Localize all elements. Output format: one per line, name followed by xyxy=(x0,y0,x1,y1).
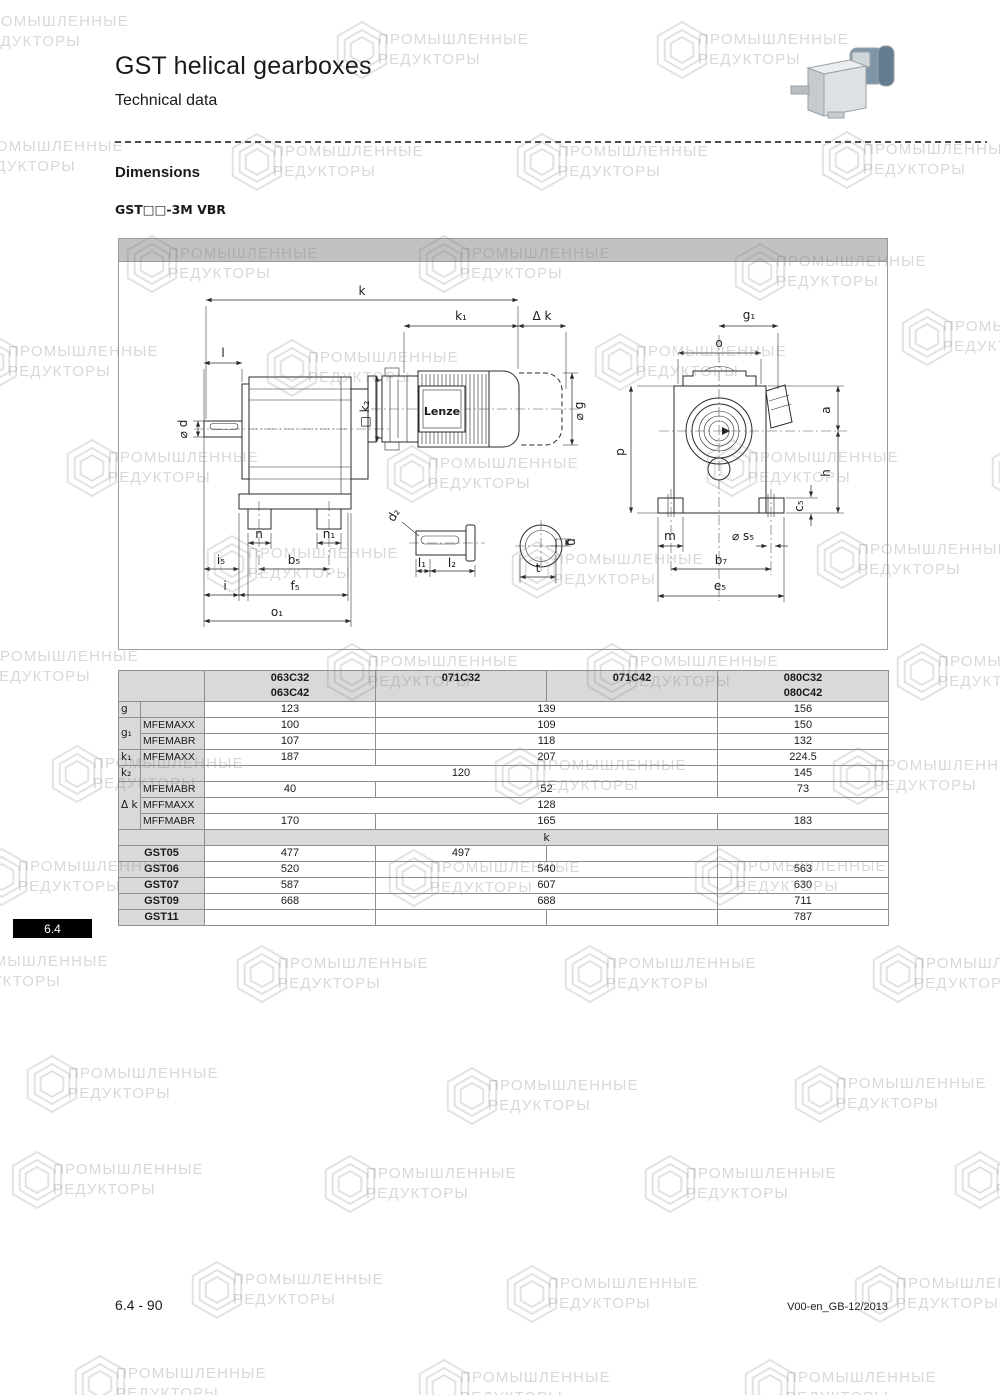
value-cell xyxy=(547,910,718,926)
watermark-text: ПРОМЫШЛЕННЫЕРЕДУКТОРЫ xyxy=(378,30,529,70)
watermark: ПРОМЫШЛЕННЫЕРЕДУКТОРЫ xyxy=(500,1262,699,1326)
column-header-cell: 080C32080C42 xyxy=(718,671,889,702)
watermark-text: ПРОМЫШЛЕННЫЕРЕДУКТОРЫ xyxy=(686,1164,837,1204)
dim-label-o₁: o₁ xyxy=(271,605,283,619)
watermark-logo-icon xyxy=(20,1052,84,1116)
watermark-logo-icon xyxy=(788,1062,852,1126)
watermark-logo-icon xyxy=(440,1064,504,1128)
dim-label-□ k₂: □ k₂ xyxy=(358,400,372,427)
dimension-table: 063C32063C42071C32071C42080C32080C42g123… xyxy=(118,670,889,926)
footer-doc-code: V00-en_GB-12/2013 xyxy=(118,1301,888,1313)
dim-label-⌀ d: ⌀ d xyxy=(176,420,190,439)
row-sublabel-cell: MFEMABR xyxy=(141,782,205,798)
dim-label-k: k xyxy=(359,284,366,298)
row-sublabel-cell: MFFMABR xyxy=(141,814,205,830)
value-cell: 630 xyxy=(718,878,889,894)
value-cell xyxy=(376,910,547,926)
value-cell: 224.5 xyxy=(718,750,889,766)
value-cell: 711 xyxy=(718,894,889,910)
page: ПРОМЫШЛЕННЫЕРЕДУКТОРЫПРОМЫШЛЕННЫЕРЕДУКТО… xyxy=(0,0,1000,1395)
drawing-header-bar xyxy=(119,239,887,262)
chapter-side-tab: 6.4 xyxy=(13,919,92,938)
watermark-text: ПРОМЫШЛЕННЫЕРЕДУКТОРЫ xyxy=(943,317,1000,357)
watermark: ПРОМЫШЛЕННЫЕРЕДУКТОРЫ xyxy=(412,1356,611,1395)
watermark: ПРОМЫШЛЕННЫЕРЕДУКТОРЫ xyxy=(948,1148,1000,1212)
value-cell: 107 xyxy=(205,734,376,750)
value-cell: 156 xyxy=(718,702,889,718)
value-cell: 563 xyxy=(718,862,889,878)
dim-label-u: u xyxy=(564,538,578,546)
watermark-text: ПРОМЫШЛЕННЫЕРЕДУКТОРЫ xyxy=(914,954,1000,994)
dim-label-t: t xyxy=(536,561,541,575)
watermark: ПРОМЫШЛЕННЫЕРЕДУКТОРЫ xyxy=(20,1052,219,1116)
value-cell xyxy=(547,846,718,862)
watermark-logo-icon xyxy=(985,440,1000,504)
gst-row-label-cell: GST09 xyxy=(119,894,205,910)
column-header-cell: 063C32063C42 xyxy=(205,671,376,702)
value-cell: 587 xyxy=(205,878,376,894)
watermark: ПРОМЫШЛЕННЫЕРЕДУКТОРЫ xyxy=(558,942,757,1006)
watermark-text: ПРОМЫШЛЕННЫЕРЕДУКТОРЫ xyxy=(0,137,124,177)
watermark: ПРОМЫШЛЕННЫЕРЕДУКТОРЫ xyxy=(5,1148,204,1212)
watermark-logo-icon xyxy=(5,1148,69,1212)
value-cell xyxy=(718,846,889,862)
watermark: ПРОМЫШЛЕННЫЕРЕДУКТОРЫ xyxy=(0,940,109,1004)
watermark-logo-icon xyxy=(500,1262,564,1326)
value-cell: 540 xyxy=(376,862,718,878)
watermark-text: ПРОМЫШЛЕННЫЕРЕДУКТОРЫ xyxy=(488,1076,639,1116)
dim-label-f₅: f₅ xyxy=(290,579,299,593)
watermark: ПРОМЫШЛЕННЫЕРЕДУКТОРЫ xyxy=(230,942,429,1006)
watermark-logo-icon xyxy=(650,18,714,82)
value-cell: 132 xyxy=(718,734,889,750)
value-cell: 207 xyxy=(376,750,718,766)
watermark: ПРОМЫШЛЕННЫЕРЕДУКТОРЫ xyxy=(440,1064,639,1128)
watermark: ПРОМЫШЛЕННЫЕРЕДУКТОРЫ xyxy=(225,130,424,194)
watermark-text: ПРОМЫШЛЕННЫЕРЕДУКТОРЫ xyxy=(996,1160,1000,1200)
dim-label-logo: Lenze xyxy=(424,405,460,418)
value-cell: 183 xyxy=(718,814,889,830)
watermark-text: ПРОМЫШЛЕННЫЕРЕДУКТОРЫ xyxy=(874,756,1000,796)
watermark-text: ПРОМЫШЛЕННЫЕРЕДУКТОРЫ xyxy=(460,1368,611,1395)
value-cell: 109 xyxy=(376,718,718,734)
value-cell: 187 xyxy=(205,750,376,766)
dim-label-i: i xyxy=(223,579,226,593)
gst-row-label-cell: GST11 xyxy=(119,910,205,926)
page-subtitle: Technical data xyxy=(115,92,217,110)
value-cell: 170 xyxy=(205,814,376,830)
watermark-logo-icon xyxy=(230,942,294,1006)
watermark-logo-icon xyxy=(412,1356,476,1395)
watermark: ПРОМЫШЛЕННЫЕРЕДУКТОРЫ xyxy=(510,130,709,194)
watermark-logo-icon xyxy=(866,942,930,1006)
value-cell: 40 xyxy=(205,782,376,798)
row-sublabel-cell: MFEMAXX xyxy=(141,718,205,734)
gst-row-label-cell: GST05 xyxy=(119,846,205,862)
column-header-cell: 071C32 xyxy=(376,671,547,702)
gst-row-label-cell: GST06 xyxy=(119,862,205,878)
row-label-cell: g₁ xyxy=(119,718,141,750)
watermark-logo-icon xyxy=(0,635,4,699)
row-label-cell: g xyxy=(119,702,141,718)
watermark-text: ПРОМЫШЛЕННЫЕРЕДУКТОРЫ xyxy=(278,954,429,994)
k-section-label-cell xyxy=(119,830,205,846)
product-photo xyxy=(788,36,913,120)
watermark: ПРОМЫШЛЕННЫЕРЕДУКТОРЫ xyxy=(815,128,1000,192)
row-sublabel-cell xyxy=(141,702,205,718)
value-cell: 607 xyxy=(376,878,718,894)
watermark: ПРОМЫШЛЕННЫЕРЕДУКТОРЫ xyxy=(638,1152,837,1216)
dim-label-⌀ g: ⌀ g xyxy=(572,402,586,421)
value-cell: 100 xyxy=(205,718,376,734)
watermark-text: ПРОМЫШЛЕННЫЕРЕДУКТОРЫ xyxy=(558,142,709,182)
row-sublabel-cell: MFEMABR xyxy=(141,734,205,750)
watermark-text: ПРОМЫШЛЕННЫЕРЕДУКТОРЫ xyxy=(606,954,757,994)
watermark: ПРОМЫШЛЕННЫЕРЕДУКТОРЫ xyxy=(985,440,1000,504)
gst-row-label-cell: GST07 xyxy=(119,878,205,894)
dim-label-e₅: e₅ xyxy=(714,579,726,593)
watermark: ПРОМЫШЛЕННЫЕРЕДУКТОРЫ xyxy=(866,942,1000,1006)
value-cell: 520 xyxy=(205,862,376,878)
dim-label-b₅: b₅ xyxy=(288,553,301,567)
column-header-cell: 071C42 xyxy=(547,671,718,702)
dim-label-g₁: g₁ xyxy=(743,308,756,322)
value-cell: 128 xyxy=(205,798,889,814)
watermark-text: ПРОМЫШЛЕННЫЕРЕДУКТОРЫ xyxy=(786,1368,937,1395)
watermark-logo-icon xyxy=(45,742,109,806)
watermark-logo-icon xyxy=(225,130,289,194)
value-cell: 52 xyxy=(376,782,718,798)
watermark: ПРОМЫШЛЕННЫЕРЕДУКТОРЫ xyxy=(895,305,1000,369)
value-cell: 150 xyxy=(718,718,889,734)
row-sublabel-cell: MFEMAXX xyxy=(141,750,205,766)
watermark-logo-icon xyxy=(0,330,24,394)
watermark: ПРОМЫШЛЕННЫЕРЕДУКТОРЫ xyxy=(318,1152,517,1216)
watermark: ПРОМЫШЛЕННЫЕРЕДУКТОРЫ xyxy=(0,125,124,189)
page-title: GST helical gearboxes xyxy=(115,52,372,81)
watermark: ПРОМЫШЛЕННЫЕРЕДУКТОРЫ xyxy=(848,1262,1000,1326)
dim-label-a: a xyxy=(819,406,833,413)
value-cell: 497 xyxy=(376,846,547,862)
watermark-text: ПРОМЫШЛЕННЫЕРЕДУКТОРЫ xyxy=(68,1064,219,1104)
watermark-logo-icon xyxy=(738,1356,802,1395)
dim-label-m: m xyxy=(664,529,676,543)
watermark-text: ПРОМЫШЛЕННЫЕРЕДУКТОРЫ xyxy=(863,140,1000,180)
watermark-logo-icon xyxy=(948,1148,1000,1212)
dim-label-k₁: k₁ xyxy=(455,309,467,323)
technical-drawing: kk₁Δ kl⌀ d□ k₂⌀ gLenzenn₁i₅b₅if₅o₁d₂l₁l₂… xyxy=(119,239,887,649)
section-heading: Dimensions xyxy=(115,164,200,181)
watermark-logo-icon xyxy=(510,130,574,194)
watermark-text: ПРОМЫШЛЕННЫЕРЕДУКТОРЫ xyxy=(0,12,129,52)
k-section-cell: k xyxy=(205,830,889,846)
dim-label-h: h xyxy=(819,469,833,477)
value-cell: 123 xyxy=(205,702,376,718)
dashed-divider xyxy=(115,141,987,143)
watermark-text: ПРОМЫШЛЕННЫЕРЕДУКТОРЫ xyxy=(896,1274,1000,1314)
watermark-logo-icon xyxy=(68,1352,132,1395)
watermark-text: ПРОМЫШЛЕННЫЕРЕДУКТОРЫ xyxy=(53,1160,204,1200)
value-cell: 73 xyxy=(718,782,889,798)
row-label-cell: Δ k xyxy=(119,782,141,830)
watermark-logo-icon xyxy=(848,1262,912,1326)
value-cell: 139 xyxy=(376,702,718,718)
watermark-logo-icon xyxy=(0,845,34,909)
table-corner-cell xyxy=(119,671,205,702)
watermark: ПРОМЫШЛЕННЫЕРЕДУКТОРЫ xyxy=(68,1352,267,1395)
value-cell: 477 xyxy=(205,846,376,862)
watermark-text: ПРОМЫШЛЕННЫЕРЕДУКТОРЫ xyxy=(0,952,109,992)
dim-label-p: p xyxy=(613,448,627,456)
watermark-text: ПРОМЫШЛЕННЫЕРЕДУКТОРЫ xyxy=(366,1164,517,1204)
dim-label-n: n xyxy=(255,527,263,541)
dim-label-l₁: l₁ xyxy=(418,556,426,570)
value-cell: 145 xyxy=(718,766,889,782)
watermark: ПРОМЫШЛЕННЫЕРЕДУКТОРЫ xyxy=(0,0,129,64)
dim-label-⌀ s₅: ⌀ s₅ xyxy=(732,529,754,543)
dim-label-c₅: c₅ xyxy=(792,500,806,512)
row-sublabel-cell xyxy=(141,766,205,782)
watermark: ПРОМЫШЛЕННЫЕРЕДУКТОРЫ xyxy=(788,1062,987,1126)
watermark-logo-icon xyxy=(895,305,959,369)
dim-label-l₂: l₂ xyxy=(448,556,456,570)
value-cell: 668 xyxy=(205,894,376,910)
watermark: ПРОМЫШЛЕННЫЕРЕДУКТОРЫ xyxy=(890,640,1000,704)
dim-label-Δ k: Δ k xyxy=(533,309,552,323)
value-cell: 165 xyxy=(376,814,718,830)
value-cell: 120 xyxy=(205,766,718,782)
dim-label-o: o xyxy=(715,336,722,350)
watermark-logo-icon xyxy=(815,128,879,192)
value-cell xyxy=(205,910,376,926)
watermark-text: ПРОМЫШЛЕННЫЕРЕДУКТОРЫ xyxy=(273,142,424,182)
value-cell: 787 xyxy=(718,910,889,926)
watermark-logo-icon xyxy=(890,640,954,704)
row-label-cell: k₂ xyxy=(119,766,141,782)
dim-label-b₇: b₇ xyxy=(715,553,728,567)
dim-label-l: l xyxy=(221,346,224,360)
watermark: ПРОМЫШЛЕННЫЕРЕДУКТОРЫ xyxy=(738,1356,937,1395)
dim-label-n₁: n₁ xyxy=(323,527,336,541)
row-label-cell: k₁ xyxy=(119,750,141,766)
watermark-logo-icon xyxy=(558,942,622,1006)
value-cell: 118 xyxy=(376,734,718,750)
watermark-logo-icon xyxy=(638,1152,702,1216)
drawing-panel: kk₁Δ kl⌀ d□ k₂⌀ gLenzenn₁i₅b₅if₅o₁d₂l₁l₂… xyxy=(118,238,888,650)
watermark-text: ПРОМЫШЛЕННЫЕРЕДУКТОРЫ xyxy=(836,1074,987,1114)
dim-label-i₅: i₅ xyxy=(217,553,225,567)
watermark-logo-icon xyxy=(60,436,124,500)
dim-label-d₂: d₂ xyxy=(384,506,402,524)
row-sublabel-cell: MFFMAXX xyxy=(141,798,205,814)
watermark-logo-icon xyxy=(318,1152,382,1216)
watermark-text: ПРОМЫШЛЕННЫЕРЕДУКТОРЫ xyxy=(938,652,1000,692)
model-variant-label: GST□□-3M VBR xyxy=(115,202,226,217)
value-cell: 688 xyxy=(376,894,718,910)
watermark-text: ПРОМЫШЛЕННЫЕРЕДУКТОРЫ xyxy=(116,1364,267,1395)
